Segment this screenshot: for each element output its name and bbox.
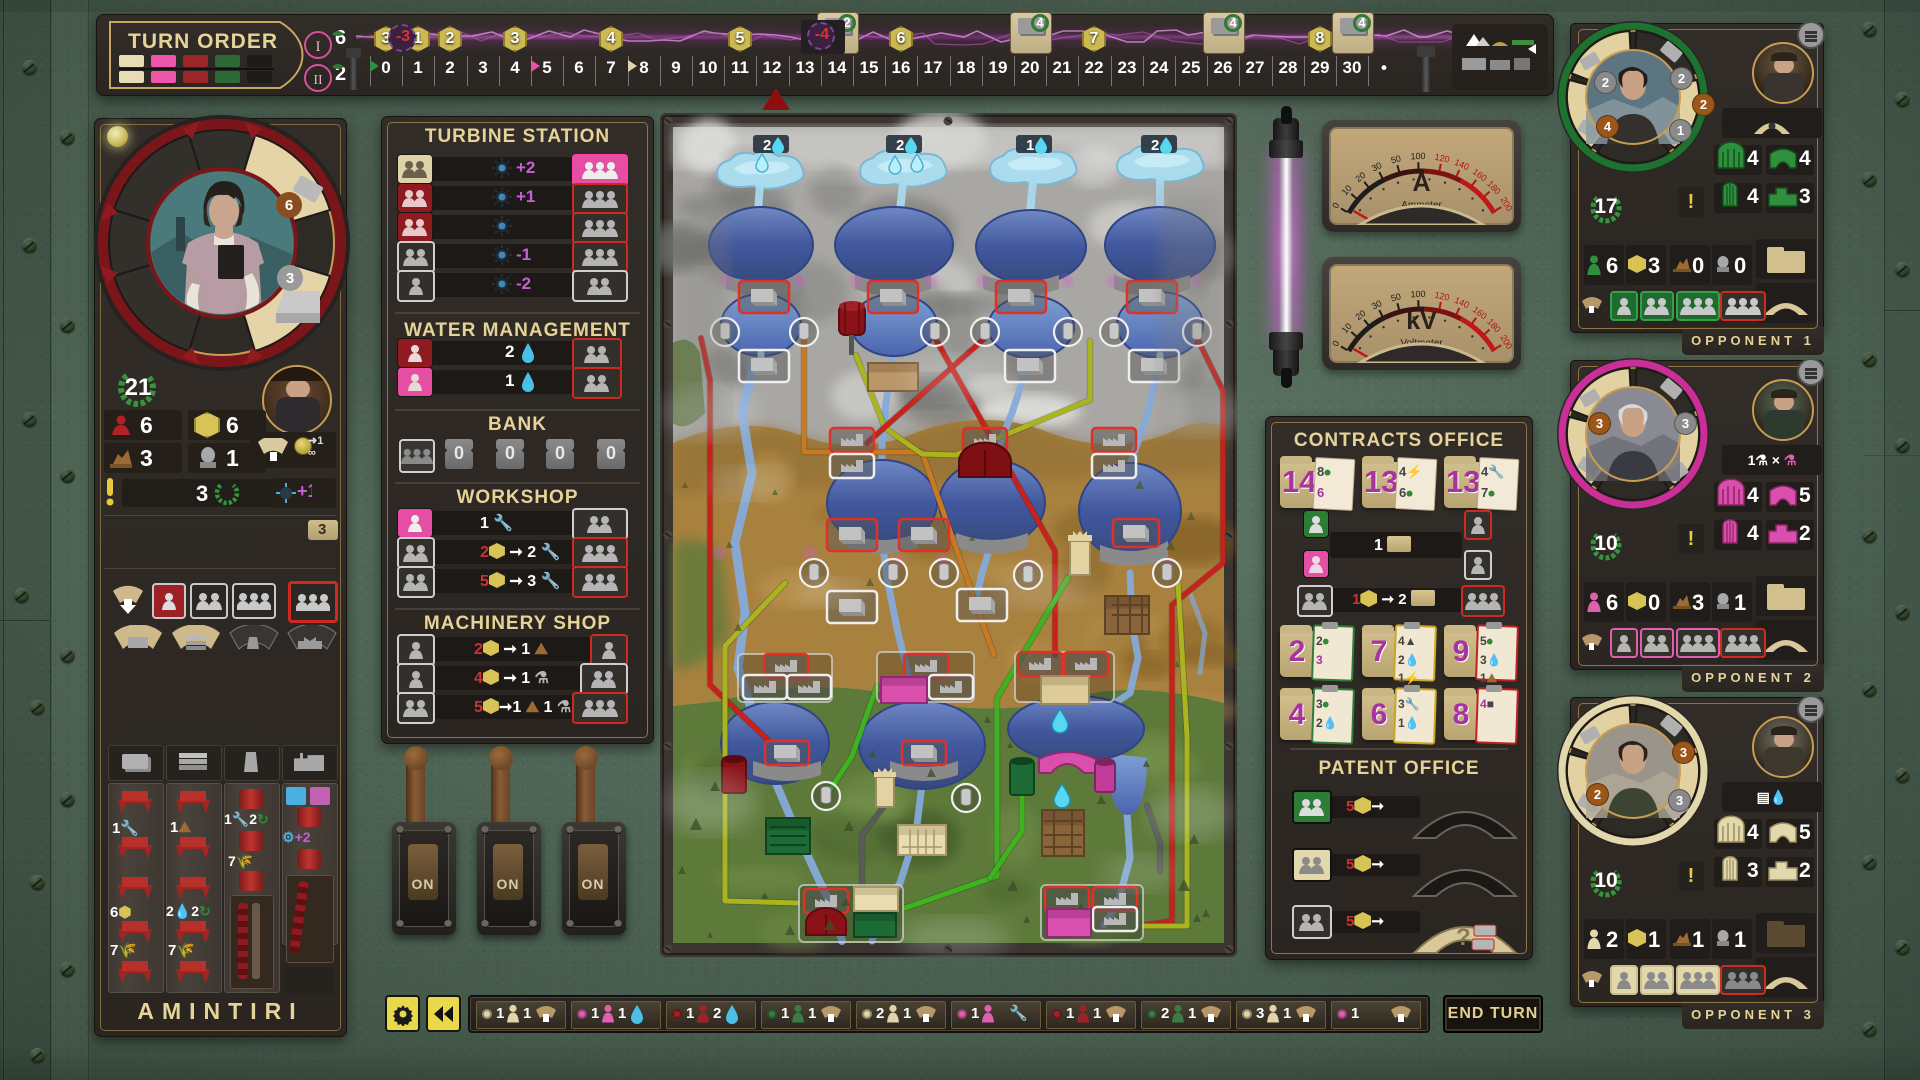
svg-text:kV: kV: [1406, 307, 1437, 335]
svg-text:2: 2: [763, 137, 771, 154]
svg-text:2: 2: [1151, 137, 1159, 154]
svg-text:140: 140: [1453, 295, 1471, 310]
svg-text:30: 30: [1370, 160, 1383, 173]
svg-text:200: 200: [1498, 195, 1514, 213]
svg-text:?: ?: [1456, 924, 1471, 951]
svg-text:2: 2: [896, 137, 904, 154]
svg-text:II: II: [313, 73, 323, 88]
svg-text:160: 160: [1471, 304, 1489, 321]
svg-text:140: 140: [1453, 157, 1471, 172]
svg-text:160: 160: [1471, 166, 1489, 183]
svg-text:200: 200: [1498, 333, 1514, 351]
svg-text:120: 120: [1434, 152, 1451, 165]
svg-text:100: 100: [1410, 289, 1425, 300]
svg-text:0: 0: [1330, 201, 1341, 210]
svg-text:50: 50: [1390, 291, 1402, 303]
svg-text:50: 50: [1390, 153, 1402, 165]
svg-text:30: 30: [1370, 298, 1383, 311]
svg-text:A: A: [1412, 169, 1430, 197]
svg-text:120: 120: [1434, 290, 1451, 303]
svg-text:0: 0: [1330, 339, 1341, 348]
svg-text:100: 100: [1410, 151, 1425, 162]
svg-text:1: 1: [1026, 137, 1034, 154]
svg-text:I: I: [316, 39, 321, 55]
